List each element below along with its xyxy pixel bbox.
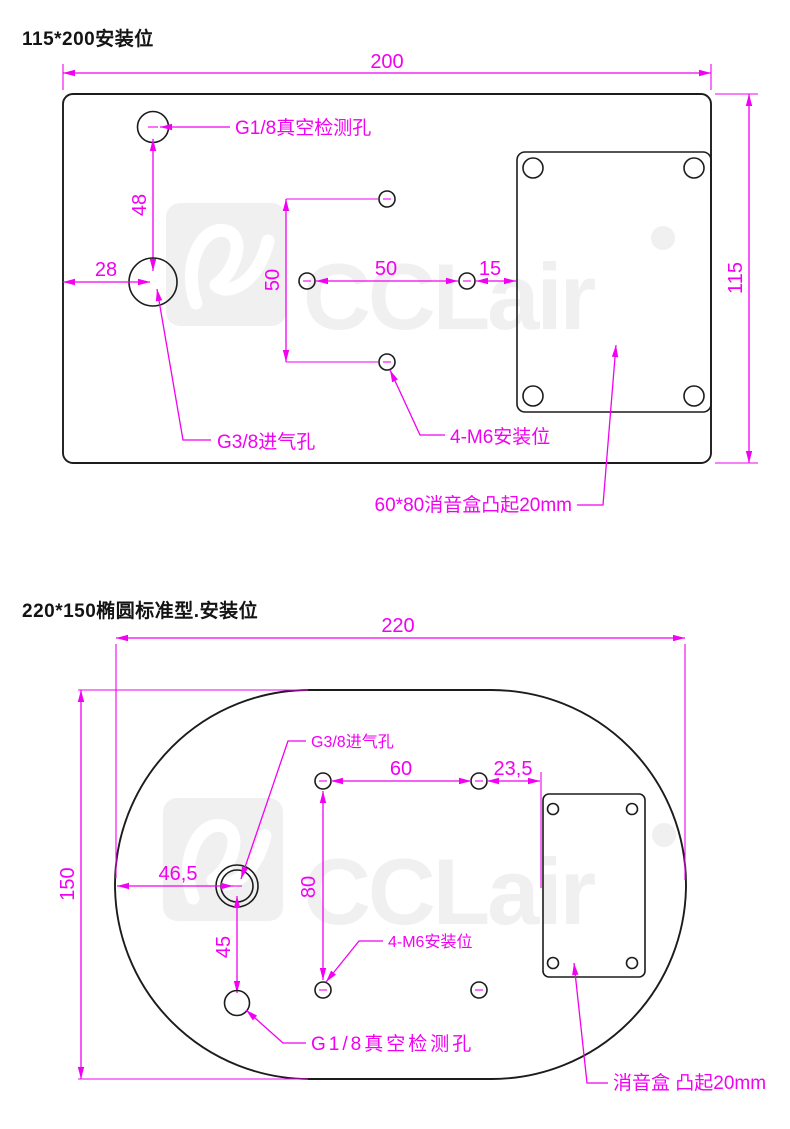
dim-text-50v: 50	[262, 269, 284, 291]
leader-mounting-holes: 4-M6安装位	[390, 370, 550, 448]
label-g18-vacuum: G1/8真空检测孔	[311, 1033, 474, 1055]
dim-48: 48	[129, 139, 153, 271]
dim-15: 15	[476, 258, 516, 281]
muffler-box	[543, 794, 645, 977]
dim-text-46-5: 46,5	[159, 863, 198, 885]
dim-text-height: 115	[725, 262, 747, 294]
leader-g38-intake: G3/8进气孔	[157, 289, 315, 453]
dim-23-5: 23,5	[487, 758, 541, 888]
dim-text-220: 220	[381, 615, 414, 637]
oval-plate-outline	[115, 690, 686, 1079]
dim-width-220: 220	[116, 615, 685, 880]
dim-text-width: 200	[370, 51, 403, 73]
dim-45: 45	[213, 896, 237, 993]
dim-height-115: 115	[715, 94, 758, 463]
label-mounting-holes: 4-M6安装位	[388, 933, 472, 951]
dim-text-60: 60	[390, 758, 412, 780]
leader-mounting-holes: 4-M6安装位	[326, 933, 472, 982]
hole-g18-vacuum	[225, 991, 250, 1016]
dim-text-15: 15	[479, 258, 501, 280]
leader-muffler-box: 消音盒 凸起20mm	[574, 963, 766, 1094]
bottom-drawing: 220 150 G3/8进气孔 46,5	[57, 615, 766, 1094]
dim-width-200: 200	[63, 51, 711, 90]
dim-28: 28	[63, 259, 150, 282]
label-g38-intake: G3/8进气孔	[311, 733, 394, 751]
dim-text-80: 80	[298, 876, 320, 898]
label-muffler-box: 60*80消音盒凸起20mm	[375, 494, 572, 516]
top-drawing: 200 115 G1/8真空检测孔 48	[63, 51, 758, 516]
dim-text-23-5: 23,5	[494, 758, 533, 780]
dim-text-28: 28	[95, 259, 117, 281]
label-g38-intake: G3/8进气孔	[217, 431, 315, 453]
label-mounting-holes: 4-M6安装位	[450, 426, 550, 448]
dim-50-horizontal: 50	[316, 258, 458, 281]
leader-g18-vacuum: G1/8真空检测孔	[160, 117, 371, 139]
label-muffler-box: 消音盒 凸起20mm	[613, 1072, 766, 1094]
dim-text-48: 48	[129, 194, 151, 216]
dim-text-50h: 50	[375, 258, 397, 280]
dim-text-45: 45	[213, 936, 235, 958]
leader-g38-intake: G3/8进气孔	[241, 733, 394, 879]
dim-80: 80	[298, 791, 323, 980]
label-g18-vacuum: G1/8真空检测孔	[235, 117, 371, 139]
dim-text-150: 150	[57, 867, 79, 900]
dim-60: 60	[331, 758, 471, 781]
leader-g18-vacuum: G1/8真空检测孔	[246, 1010, 474, 1055]
drawing-page: CCLair CCLair 115*200安装位 220*150椭圆标准型.安装…	[0, 0, 790, 1129]
